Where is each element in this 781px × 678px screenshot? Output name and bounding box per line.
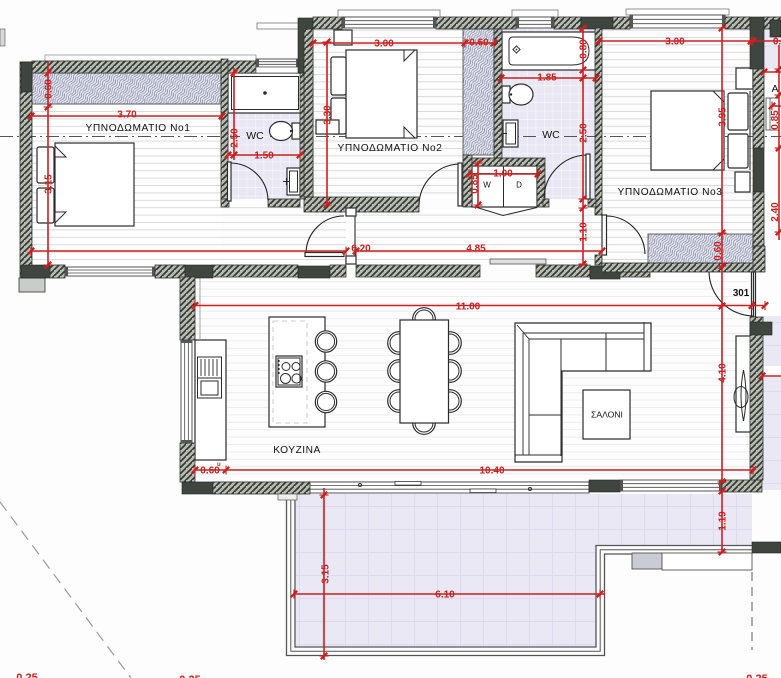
svg-text:3.15: 3.15 — [43, 174, 54, 194]
svg-text:A: A — [771, 83, 778, 95]
svg-text:D: D — [516, 181, 522, 190]
svg-text:3.30: 3.30 — [322, 105, 333, 125]
svg-text:1.10: 1.10 — [578, 222, 589, 242]
svg-text:3.15: 3.15 — [320, 564, 331, 584]
svg-text:0.25: 0.25 — [179, 674, 200, 678]
svg-text:1.50: 1.50 — [254, 150, 274, 161]
svg-text:W: W — [483, 181, 491, 190]
svg-text:ΣΑΛΟΝΙ: ΣΑΛΟΝΙ — [591, 410, 623, 420]
svg-text:3.70: 3.70 — [117, 109, 137, 120]
svg-text:0.60: 0.60 — [469, 37, 489, 48]
svg-text:11.00: 11.00 — [456, 301, 481, 312]
svg-text:4.10: 4.10 — [717, 363, 728, 383]
svg-text:3.95: 3.95 — [717, 107, 728, 127]
svg-text:u: u — [217, 462, 221, 468]
svg-text:10.40: 10.40 — [479, 465, 504, 476]
svg-text:ΚΟΥΖΙΝΑ: ΚΟΥΖΙΝΑ — [273, 445, 321, 456]
svg-text:2.50: 2.50 — [578, 123, 589, 143]
svg-text:WC: WC — [246, 130, 264, 142]
svg-text:0.80: 0.80 — [578, 39, 589, 59]
svg-text:2.50: 2.50 — [229, 128, 240, 148]
svg-text:2.40: 2.40 — [770, 202, 781, 222]
svg-text:0.85: 0.85 — [770, 110, 781, 130]
svg-text:1.00: 1.00 — [493, 168, 513, 179]
svg-text:0.85: 0.85 — [469, 174, 480, 194]
svg-text:6.10: 6.10 — [435, 589, 455, 600]
svg-text:WC: WC — [542, 129, 560, 141]
svg-text:0.60: 0.60 — [713, 241, 724, 261]
svg-text:301: 301 — [733, 288, 750, 299]
svg-text:0.60: 0.60 — [43, 79, 54, 99]
svg-text:1.19: 1.19 — [717, 511, 728, 531]
svg-text:3.00: 3.00 — [665, 36, 685, 47]
svg-text:4.85: 4.85 — [466, 243, 486, 254]
svg-text:ΥΠΝΟΔΩΜΑΤΙΟ Νο3: ΥΠΝΟΔΩΜΑΤΙΟ Νο3 — [618, 187, 723, 198]
svg-text:0.25: 0.25 — [746, 673, 767, 678]
svg-text:3.00: 3.00 — [374, 38, 394, 49]
svg-text:1.85: 1.85 — [537, 72, 557, 83]
svg-text:ΥΠΝΟΔΩΜΑΤΙΟ Νο1: ΥΠΝΟΔΩΜΑΤΙΟ Νο1 — [86, 123, 191, 134]
svg-text:ΥΠΝΟΔΩΜΑΤΙΟ Νο2: ΥΠΝΟΔΩΜΑΤΙΟ Νο2 — [338, 143, 443, 154]
svg-text:0.25: 0.25 — [16, 672, 37, 678]
